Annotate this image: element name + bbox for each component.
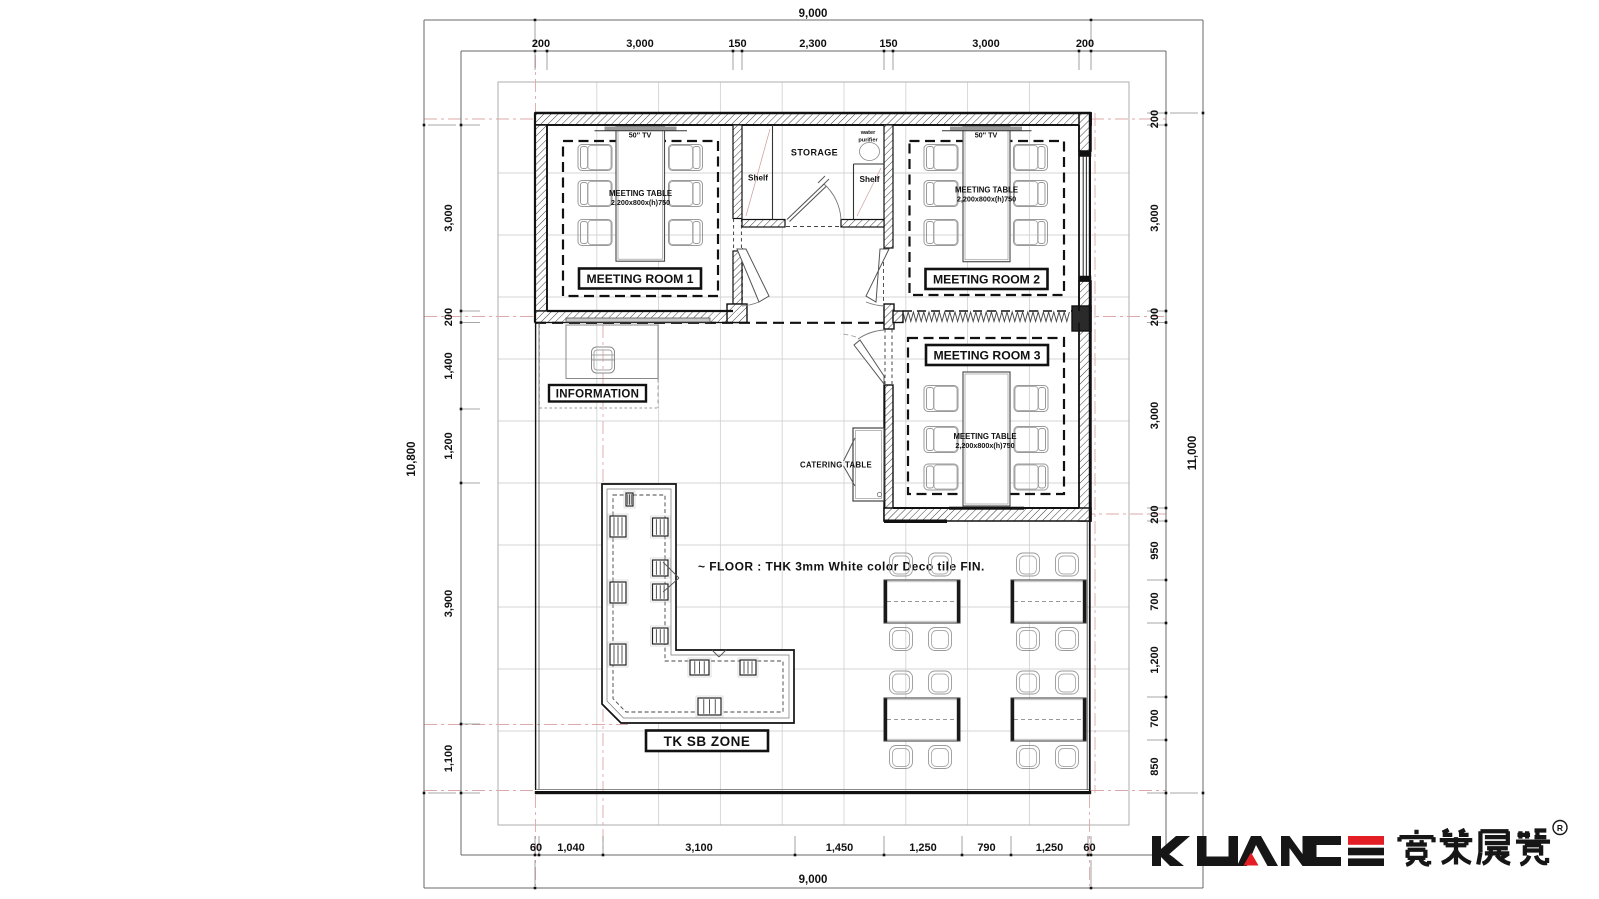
svg-text:200: 200 bbox=[1076, 38, 1094, 50]
svg-text:3,900: 3,900 bbox=[443, 590, 455, 618]
svg-text:3,000: 3,000 bbox=[1149, 204, 1161, 232]
svg-text:200: 200 bbox=[1149, 505, 1161, 523]
svg-text:2,200x800x(h)750: 2,200x800x(h)750 bbox=[957, 195, 1016, 204]
svg-text:850: 850 bbox=[1149, 757, 1161, 775]
svg-text:700: 700 bbox=[1149, 709, 1161, 727]
svg-text:11,000: 11,000 bbox=[1187, 436, 1199, 471]
svg-text:3,100: 3,100 bbox=[685, 842, 713, 854]
svg-text:R: R bbox=[1557, 823, 1563, 833]
svg-text:200: 200 bbox=[532, 38, 550, 50]
svg-text:MEETING ROOM 3: MEETING ROOM 3 bbox=[934, 348, 1041, 362]
svg-text:60: 60 bbox=[1083, 842, 1095, 854]
svg-text:2,200x800x(h)750: 2,200x800x(h)750 bbox=[611, 198, 670, 207]
svg-text:3,000: 3,000 bbox=[972, 38, 1000, 50]
svg-text:1,400: 1,400 bbox=[443, 352, 455, 380]
svg-text:1,200: 1,200 bbox=[1149, 646, 1161, 674]
svg-text:50″ TV: 50″ TV bbox=[975, 131, 998, 140]
svg-text:10,800: 10,800 bbox=[406, 441, 418, 476]
svg-text:50″ TV: 50″ TV bbox=[629, 131, 652, 140]
svg-text:950: 950 bbox=[1149, 541, 1161, 559]
svg-text:200: 200 bbox=[1149, 110, 1161, 128]
svg-text:CATERING TABLE: CATERING TABLE bbox=[800, 461, 872, 470]
svg-text:Shelf: Shelf bbox=[748, 174, 768, 183]
svg-text:1,250: 1,250 bbox=[909, 842, 937, 854]
svg-text:1,100: 1,100 bbox=[443, 745, 455, 773]
svg-text:MEETING TABLE: MEETING TABLE bbox=[609, 189, 672, 198]
svg-text:60: 60 bbox=[530, 842, 542, 854]
svg-text:MEETING ROOM 2: MEETING ROOM 2 bbox=[933, 272, 1040, 286]
svg-text:MEETING ROOM 1: MEETING ROOM 1 bbox=[587, 272, 694, 286]
svg-text:150: 150 bbox=[879, 38, 897, 50]
svg-text:1,040: 1,040 bbox=[557, 842, 585, 854]
svg-text:150: 150 bbox=[728, 38, 746, 50]
svg-text:3,000: 3,000 bbox=[626, 38, 654, 50]
svg-text:9,000: 9,000 bbox=[799, 8, 828, 20]
svg-text:MEETING TABLE: MEETING TABLE bbox=[955, 186, 1018, 195]
svg-text:Shelf: Shelf bbox=[859, 175, 879, 184]
svg-text:1,250: 1,250 bbox=[1036, 842, 1064, 854]
svg-text:3,000: 3,000 bbox=[443, 204, 455, 232]
svg-text:TK SB ZONE: TK SB ZONE bbox=[664, 734, 751, 749]
svg-text:200: 200 bbox=[443, 308, 455, 326]
svg-text:9,000: 9,000 bbox=[799, 874, 828, 886]
svg-text:INFORMATION: INFORMATION bbox=[556, 389, 640, 401]
svg-text:MEETING TABLE: MEETING TABLE bbox=[953, 432, 1016, 441]
svg-text:1,450: 1,450 bbox=[826, 842, 854, 854]
svg-text:3,000: 3,000 bbox=[1149, 402, 1161, 430]
svg-text:~ FLOOR : THK 3mm White color: ~ FLOOR : THK 3mm White color Deco tile … bbox=[698, 560, 985, 574]
svg-text:790: 790 bbox=[977, 842, 995, 854]
svg-text:2,200x800x(h)750: 2,200x800x(h)750 bbox=[955, 441, 1014, 450]
svg-text:water: water bbox=[860, 130, 876, 136]
svg-text:700: 700 bbox=[1149, 592, 1161, 610]
svg-text:200: 200 bbox=[1149, 308, 1161, 326]
svg-text:2,300: 2,300 bbox=[799, 38, 827, 50]
svg-text:STORAGE: STORAGE bbox=[791, 148, 838, 158]
svg-text:1,200: 1,200 bbox=[443, 432, 455, 460]
